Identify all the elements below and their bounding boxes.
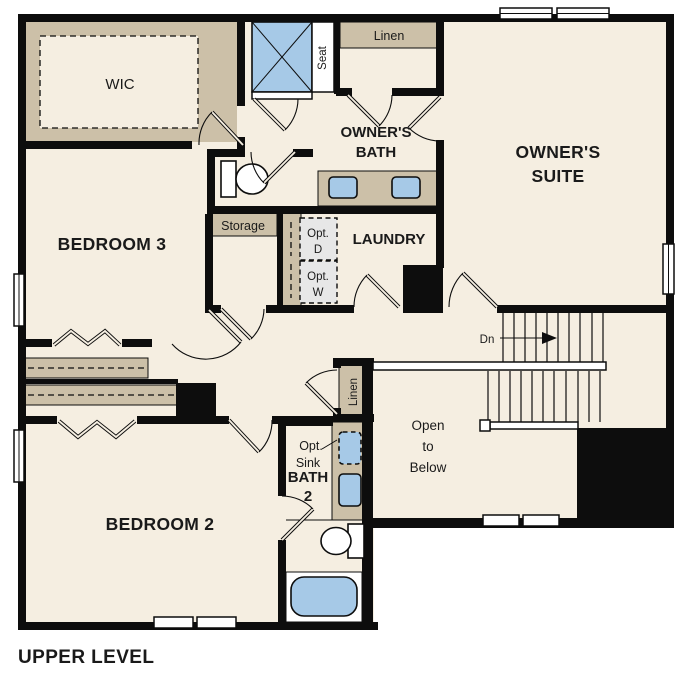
label-storage: Storage (221, 219, 265, 233)
bath2-toilet-bowl (321, 528, 351, 555)
label-opt-dryer-2: D (314, 244, 322, 256)
wall-closet3-top-left (18, 339, 52, 347)
wall-open-below-left (362, 358, 373, 630)
stair-rail (373, 362, 606, 370)
label-linen-upper: Linen (374, 29, 405, 43)
room-label-owners-suite-2: SUITE (531, 166, 584, 186)
plan-title: UPPER LEVEL (18, 647, 154, 668)
wall-laundry-right (436, 206, 444, 268)
label-opt-sink-1: Opt. (299, 439, 323, 453)
wall-bath2-left-upper (278, 416, 286, 496)
bath2-optional-sink (339, 432, 361, 464)
room-label-bedroom3: BEDROOM 3 (58, 234, 167, 254)
wall-bath2-left-lower (278, 540, 286, 630)
wall-closet-divider (18, 379, 178, 384)
floor-plan-drawing: WIC Seat Linen OWNER'S BATH OWNER'S SUIT… (0, 0, 687, 687)
window-openbelow-2 (523, 515, 559, 526)
wall-linen-bottom-right (392, 88, 436, 96)
wall-bedroom3-right (205, 214, 213, 306)
wall-bath-suite-upper (436, 14, 444, 96)
room-label-owners-bath-1: OWNER'S (340, 124, 411, 141)
shower-threshold (252, 92, 312, 99)
wall-wc-left (207, 149, 215, 214)
bath2-sink (339, 474, 361, 506)
room-label-bath2-2: 2 (304, 488, 312, 505)
wall-bedroom2-top-a (18, 416, 57, 424)
wall-wic-shower-divider (237, 14, 245, 106)
owners-bath-sink-right (392, 177, 420, 198)
window-openbelow-1 (483, 515, 519, 526)
room-label-wic: WIC (105, 76, 134, 93)
window-bedroom2-bottom-1 (154, 617, 193, 628)
stair-newel-post (480, 420, 490, 431)
room-label-bedroom2: BEDROOM 2 (106, 514, 215, 534)
wc-toilet-tank (221, 161, 236, 197)
room-label-laundry: LAUNDRY (353, 231, 426, 248)
wall-hall-top-b (266, 305, 354, 313)
label-opt-dryer-1: Opt. (307, 228, 329, 240)
label-opt-washer-1: Opt. (307, 271, 329, 283)
bathtub (291, 577, 357, 616)
owners-bath-sink-left (329, 177, 357, 198)
wall-seat-linen-divider (334, 14, 340, 94)
room-label-bath2-1: BATH (288, 469, 329, 486)
label-open-below-3: Below (410, 460, 447, 475)
wall-closet3-top-right (122, 339, 152, 347)
wall-bath-suite-lower (436, 140, 444, 214)
window-bedroom2-bottom-2 (197, 617, 236, 628)
room-label-owners-bath-2: BATH (356, 144, 397, 161)
stair-lower-rail (490, 422, 578, 429)
wall-bath2-top (278, 416, 333, 426)
wall-stairs-top (497, 305, 674, 313)
wall-storage-right (277, 214, 283, 306)
floor-plan-page: WIC Seat Linen OWNER'S BATH OWNER'S SUIT… (0, 0, 687, 687)
wall-bath-bottom (207, 206, 444, 214)
label-stairs-down: Dn (480, 334, 495, 346)
label-linen-hall: Linen (348, 378, 360, 406)
label-opt-sink-2: Sink (296, 456, 321, 470)
label-opt-washer-2: W (313, 287, 324, 299)
label-seat: Seat (317, 45, 329, 69)
wall-wic-bottom (18, 141, 192, 149)
wall-bedroom2-top-b (137, 416, 229, 424)
wall-mass-below-stairs (577, 428, 674, 528)
wall-wc-top-left (215, 149, 245, 157)
wc-toilet-bowl (236, 164, 268, 194)
wall-linen-hall-stub-top (333, 358, 341, 368)
label-open-below-1: Open (411, 418, 444, 433)
room-label-owners-suite-1: OWNER'S (515, 142, 600, 162)
wall-chase (403, 265, 443, 313)
label-open-below-2: to (422, 439, 433, 454)
